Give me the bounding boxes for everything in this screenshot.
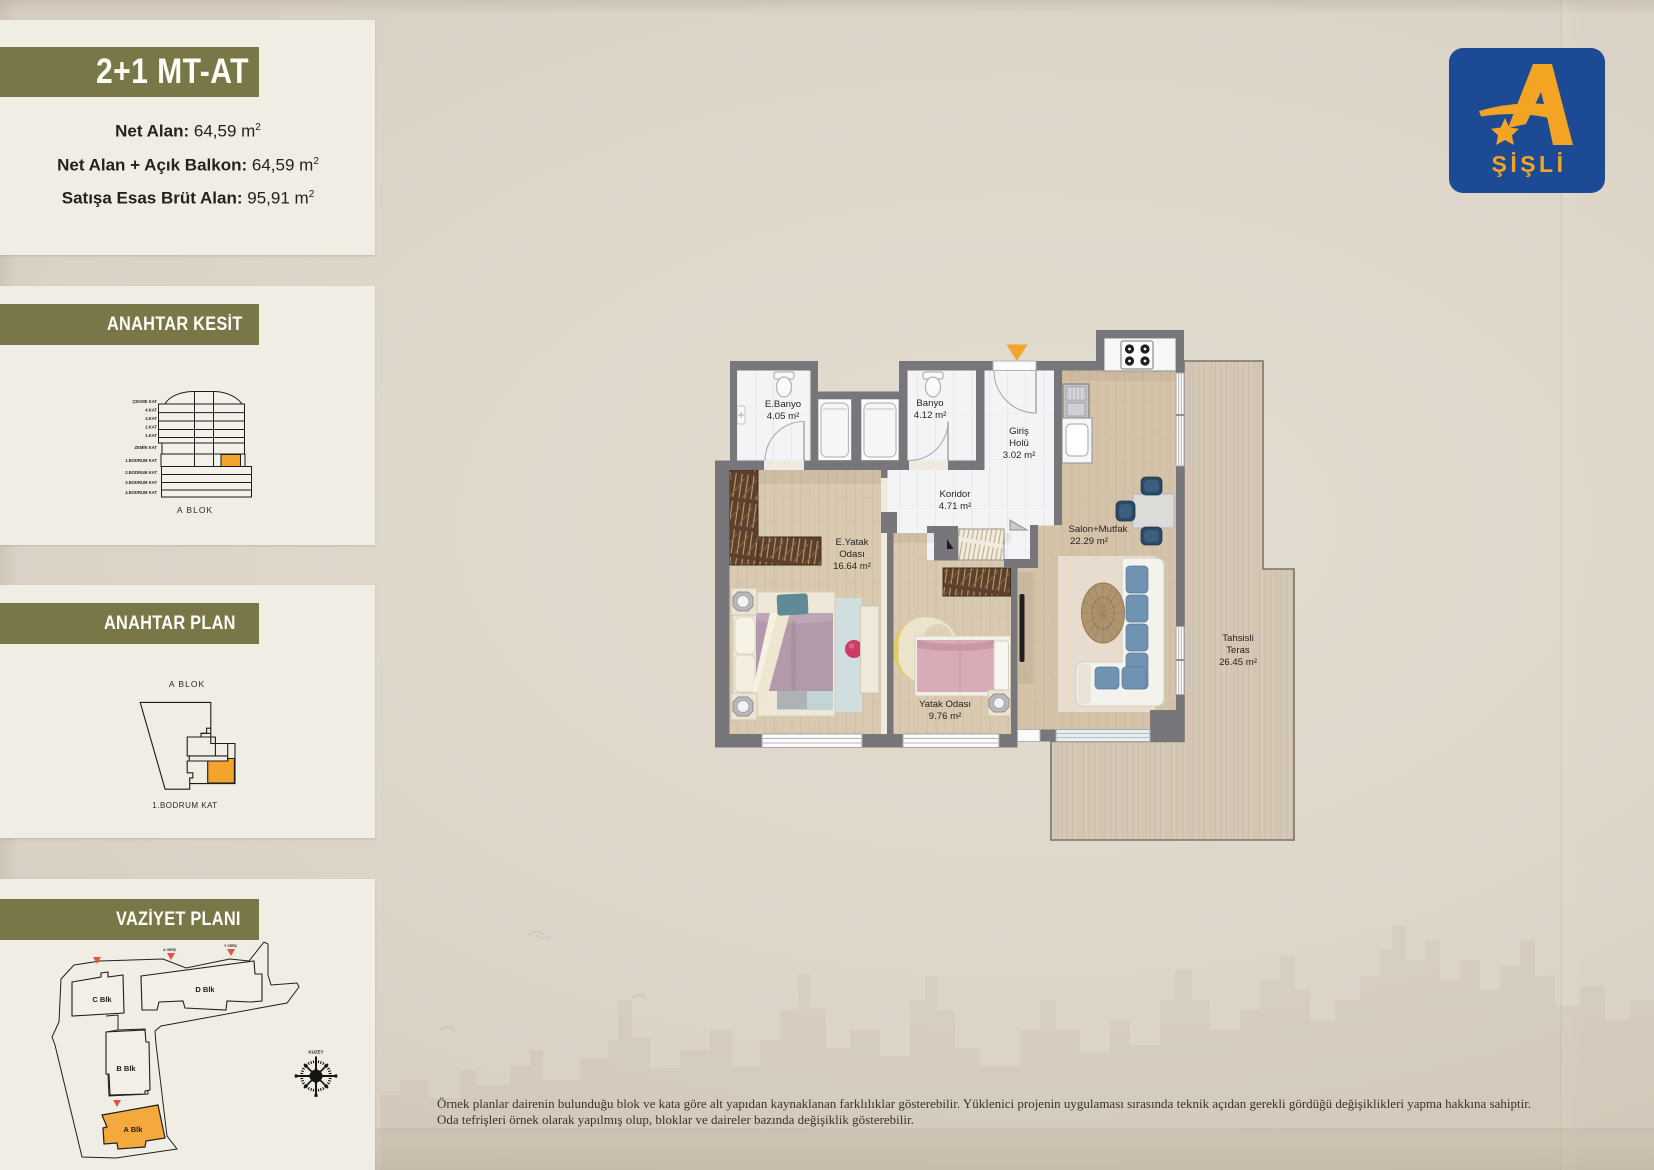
svg-text:4.12 m²: 4.12 m² [914,410,947,421]
svg-text:A Blk: A Blk [124,1125,144,1134]
svg-text:E.Banyo: E.Banyo [765,399,801,410]
svg-text:A BLOK: A BLOK [177,505,213,515]
svg-text:1.BODRUM KAT: 1.BODRUM KAT [152,801,217,810]
svg-text:ZEMİN KAT: ZEMİN KAT [135,445,158,450]
svg-text:3.02 m²: 3.02 m² [1003,450,1036,461]
svg-text:Giriş: Giriş [1009,426,1029,437]
svg-text:A BLOK: A BLOK [169,679,205,689]
svg-text:Holü: Holü [1009,438,1029,449]
svg-text:4.71 m²: 4.71 m² [939,501,972,512]
svg-text:3.KAT: 3.KAT [145,416,157,421]
svg-text:Tahsisli: Tahsisli [1222,633,1253,644]
svg-text:KUZEY: KUZEY [308,1050,323,1055]
svg-text:Koridor: Koridor [940,489,972,500]
svg-text:9.76 m²: 9.76 m² [929,711,962,722]
svg-text:2.BODRUM KAT: 2.BODRUM KAT [125,470,157,475]
svg-text:26.45 m²: 26.45 m² [1219,657,1258,668]
svg-text:16.64 m²: 16.64 m² [833,561,872,572]
svg-text:Odası: Odası [839,549,865,560]
svg-text:Teras: Teras [1226,645,1250,656]
svg-text:D Blk: D Blk [195,985,215,994]
svg-text:E.Yatak: E.Yatak [836,537,869,548]
svg-text:4.BODRUM KAT: 4.BODRUM KAT [125,490,157,495]
svg-text:C Blk: C Blk [92,995,112,1004]
svg-text:ŞİŞLİ: ŞİŞLİ [1491,151,1566,177]
svg-text:4.KAT: 4.KAT [145,408,157,413]
svg-text:22.29 m²: 22.29 m² [1070,536,1109,547]
svg-text:Yatak Odası: Yatak Odası [919,699,971,710]
svg-text:1.KAT: 1.KAT [145,433,157,438]
svg-text:3.BODRUM KAT: 3.BODRUM KAT [125,480,157,485]
svg-text:4.05 m²: 4.05 m² [767,411,800,422]
svg-text:2.KAT: 2.KAT [145,425,157,430]
svg-text:B Blk: B Blk [116,1064,136,1073]
svg-text:Banyo: Banyo [916,398,943,409]
svg-text:1.BODRUM KAT: 1.BODRUM KAT [125,458,157,463]
svg-text:Salon+Mutfak: Salon+Mutfak [1069,524,1128,535]
svg-text:Y GİRİŞ: Y GİRİŞ [224,944,237,948]
svg-text:ÇEKME KAT: ÇEKME KAT [132,399,157,404]
svg-text:A GİRİŞ: A GİRİŞ [163,948,177,952]
